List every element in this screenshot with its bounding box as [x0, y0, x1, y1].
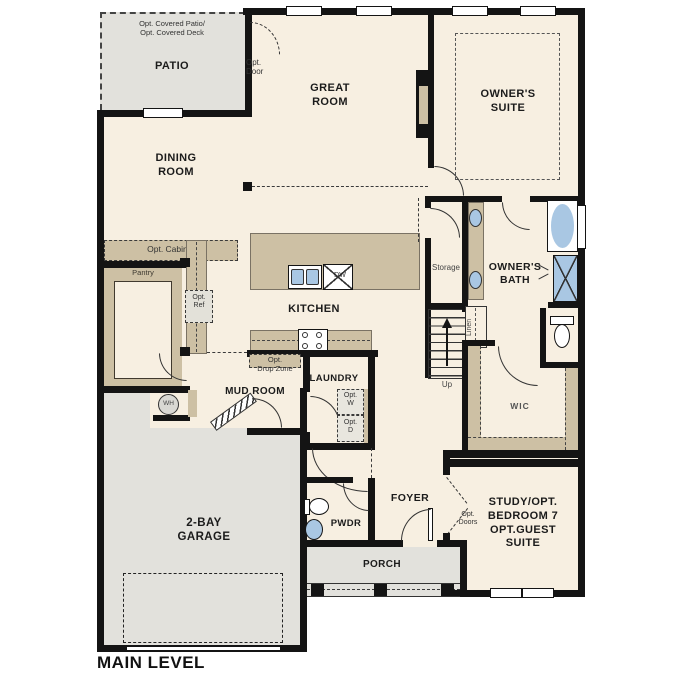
- room-label-owners-suite: OWNER'S SUITE: [458, 88, 558, 116]
- bathtub-basin: [551, 204, 574, 248]
- porch-column-3: [441, 584, 454, 596]
- room-label-kitchen: KITCHEN: [274, 303, 354, 317]
- ceiling-break-line: [252, 186, 428, 187]
- room-label-laundry: LAUNDRY: [302, 373, 366, 385]
- exterior-wall-left: [97, 110, 104, 652]
- bath-toilet-bowl: [554, 324, 570, 348]
- pwdr-sink: [305, 519, 323, 540]
- wic-shelf-left: [468, 346, 481, 450]
- wall-stub-pantry-top: [180, 258, 190, 267]
- wh-nook-wall: [153, 415, 190, 421]
- window-study-mullion: [521, 589, 523, 597]
- room-label-dining: DINING ROOM: [131, 152, 221, 180]
- water-heater-label: WH: [158, 400, 179, 407]
- garage-door-opening: [127, 646, 280, 651]
- room-label-porch: PORCH: [332, 559, 432, 572]
- storage-label: Storage: [425, 263, 467, 272]
- mud-room-cased-opening: [207, 352, 247, 353]
- front-wall-right: [437, 540, 467, 547]
- mud-garage-wall: [247, 428, 305, 435]
- pantry-top-wall: [104, 261, 188, 268]
- laundry-left-wall-upper: [303, 352, 310, 392]
- burner-4: [316, 343, 322, 349]
- porch-column-1: [311, 584, 324, 596]
- page-title: MAIN LEVEL: [97, 653, 205, 673]
- shower-bottom-wall: [548, 302, 578, 308]
- window-dining: [143, 108, 183, 118]
- room-label-pwdr: PWDR: [323, 518, 369, 530]
- sink-basin-left: [291, 269, 304, 285]
- sink-basin-right: [306, 269, 319, 285]
- dishwasher-label: DW: [328, 272, 352, 280]
- fireplace-insert: [419, 86, 428, 124]
- burner-2: [316, 332, 322, 338]
- opt-cabinet-label: Opt. Cabinet: [106, 245, 236, 255]
- wic-bottom-wall: [450, 450, 585, 458]
- room-label-mud-room: MUD ROOM: [215, 386, 295, 399]
- room-label-owners-bath: OWNER'S BATH: [475, 261, 555, 287]
- garage-parking-outline: [123, 573, 283, 643]
- shower: [553, 255, 578, 302]
- foyer-cased-opening: [371, 448, 372, 478]
- room-label-great-room: GREAT ROOM: [285, 82, 375, 110]
- study-left-wall-upper: [443, 450, 450, 475]
- wic-shelf-right: [565, 368, 578, 450]
- pantry-label: Pantry: [110, 269, 176, 278]
- bath-top-wall-left: [428, 196, 502, 202]
- window-great-room-2: [356, 6, 392, 16]
- wic-shelf-bottom: [468, 437, 578, 450]
- opt-washer-label: Opt. W: [338, 392, 363, 408]
- stairs-up-arrow-head: [442, 318, 452, 328]
- patio-note: Opt. Covered Patio/ Opt. Covered Deck: [102, 20, 242, 37]
- room-label-foyer: FOYER: [380, 492, 440, 505]
- toilet-alcove-left-wall: [540, 308, 546, 362]
- floor-plan: Opt. Covered Patio/ Opt. Covered Deck PA…: [0, 0, 687, 687]
- up-label: Up: [432, 380, 462, 389]
- room-label-garage: 2-BAY GARAGE: [144, 516, 264, 545]
- wh-nook-strip: [188, 390, 197, 417]
- front-wall-left: [303, 540, 403, 547]
- window-owners-suite-1: [452, 6, 488, 16]
- hall-ceiling-break: [418, 198, 419, 242]
- foyer-left-wall-lower: [368, 478, 375, 545]
- foyer-left-wall-upper: [368, 352, 375, 448]
- pwdr-toilet-bowl: [309, 498, 329, 515]
- opt-door-label: Opt. Door: [246, 58, 278, 76]
- room-label-wic: WIC: [490, 402, 550, 412]
- opt-drop-zone-label: Opt. Drop Zone: [242, 356, 308, 373]
- room-label-patio: PATIO: [102, 60, 242, 74]
- opt-refrigerator-label: Opt. Ref: [186, 294, 212, 310]
- burner-3: [302, 343, 308, 349]
- opt-dryer-label: Opt. D: [338, 419, 363, 435]
- ceiling-break-post: [243, 182, 252, 191]
- burner-1: [302, 332, 308, 338]
- stairs-up-arrow-shaft: [446, 326, 448, 366]
- vanity-sink-1: [469, 209, 482, 227]
- garage-top-wall: [100, 386, 190, 393]
- study-top-wall: [443, 459, 585, 467]
- room-label-study: STUDY/OPT. BEDROOM 7 OPT.GUEST SUITE: [461, 496, 585, 551]
- porch-study-divider-wall: [460, 545, 467, 595]
- window-owners-suite-2: [520, 6, 556, 16]
- porch-column-2: [374, 584, 387, 596]
- porch-edge-line-bottom: [307, 596, 460, 597]
- window-great-room-1: [286, 6, 322, 16]
